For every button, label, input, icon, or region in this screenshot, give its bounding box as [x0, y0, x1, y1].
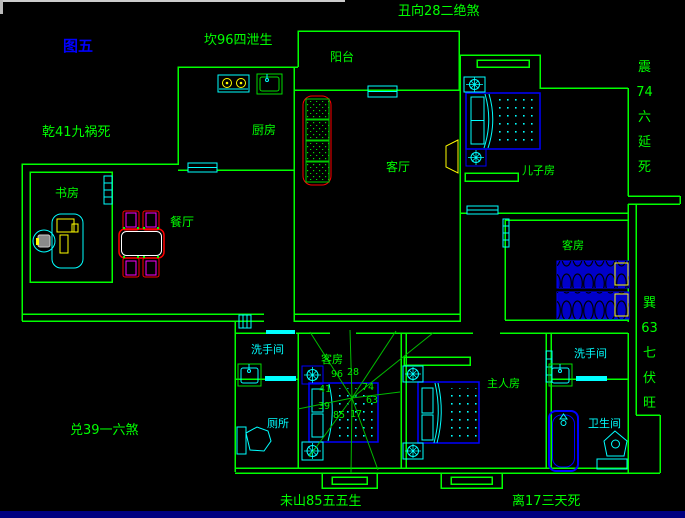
room-label-guest-center: 客房 [321, 354, 343, 366]
guest-center-nightstand-top [302, 366, 323, 384]
room-label-master: 主人房 [487, 378, 520, 390]
cad-floorplan-screen: 图五 坎96四泄生 丑向28二绝煞 乾41九祸死 震74六延死 巽63七伏旺 兑… [0, 0, 685, 518]
compass-number-28: 28 [347, 368, 359, 378]
annotation-xun: 巽63七伏旺 [641, 291, 658, 416]
kids-closet-bar [477, 60, 529, 67]
compass-number-74: 74 [362, 383, 374, 393]
computer-mouse [72, 224, 78, 232]
room-label-living: 客厅 [386, 161, 410, 174]
kids-nightstand-bottom [466, 149, 486, 166]
study-desk [52, 214, 83, 268]
annotation-weishan: 未山85五五生 [280, 495, 362, 509]
master-bed [418, 382, 479, 443]
master-shelf [404, 357, 470, 365]
door-bar-washleft [265, 376, 296, 381]
annotation-li: 离17三天死 [512, 495, 581, 509]
guest-right-window [503, 219, 509, 247]
living-balcony-window [368, 86, 397, 97]
annotation-kan: 坎96四泄生 [204, 34, 273, 48]
computer-keyboard [60, 235, 68, 253]
kids-bed [466, 93, 540, 149]
door-bar-washright [576, 376, 607, 381]
toilet-left [237, 427, 271, 454]
study-window [104, 176, 112, 204]
kids-room-window [467, 206, 498, 214]
compass-number-17: 17 [350, 410, 362, 420]
room-label-washroom-right: 洗手间 [574, 348, 607, 360]
compass-number-96: 96 [331, 370, 343, 380]
figure-label: 图五 [63, 38, 93, 55]
annotation-chou: 丑向28二绝煞 [398, 5, 480, 19]
guest-center-nightstand-bottom [302, 442, 323, 460]
room-label-washroom-left: 洗手间 [251, 344, 284, 356]
room-label-bathroom: 卫生间 [588, 418, 621, 430]
entry-step-right [441, 473, 502, 488]
kitchen-window [188, 163, 217, 172]
floorplan-drawing [0, 0, 685, 518]
compass-number-39: 39 [318, 402, 330, 412]
kitchen-stove [218, 75, 249, 92]
compass-number-85: 85 [333, 411, 345, 421]
room-label-kitchen: 厨房 [252, 124, 276, 137]
kids-nightstand-top [464, 77, 485, 92]
tv [446, 140, 458, 173]
dining-table [119, 229, 164, 258]
compass-number-41: 41 [319, 385, 331, 395]
room-label-guest-right: 客房 [562, 240, 584, 252]
guest-right-beds [557, 261, 629, 319]
toilet-right [597, 431, 627, 469]
room-label-study: 书房 [55, 187, 79, 200]
bathtub [549, 411, 578, 471]
annotation-zhen: 震74六延死 [636, 55, 653, 180]
window-bottom-bar [0, 511, 685, 518]
sofa [303, 96, 331, 185]
entry-step-left [322, 473, 377, 488]
kitchen-sink [257, 74, 282, 94]
kids-shelf [465, 173, 518, 181]
dining-set [119, 211, 164, 277]
window-corner-mark [0, 0, 3, 14]
room-label-kids: 儿子房 [522, 165, 555, 177]
sink-left [238, 364, 261, 386]
annotation-qian: 乾41九祸死 [42, 126, 111, 140]
annotation-dui: 兑39一六煞 [70, 424, 139, 438]
room-label-balcony: 阳台 [330, 51, 354, 64]
window-top-edge [0, 0, 345, 2]
compass-number-63: 63 [366, 396, 378, 406]
computer-monitor [57, 219, 74, 232]
room-label-toilet: 厕所 [267, 418, 289, 430]
dining-chairs [123, 211, 159, 277]
door-bar-washleft-top [266, 330, 295, 334]
room-label-dining: 餐厅 [170, 216, 194, 229]
